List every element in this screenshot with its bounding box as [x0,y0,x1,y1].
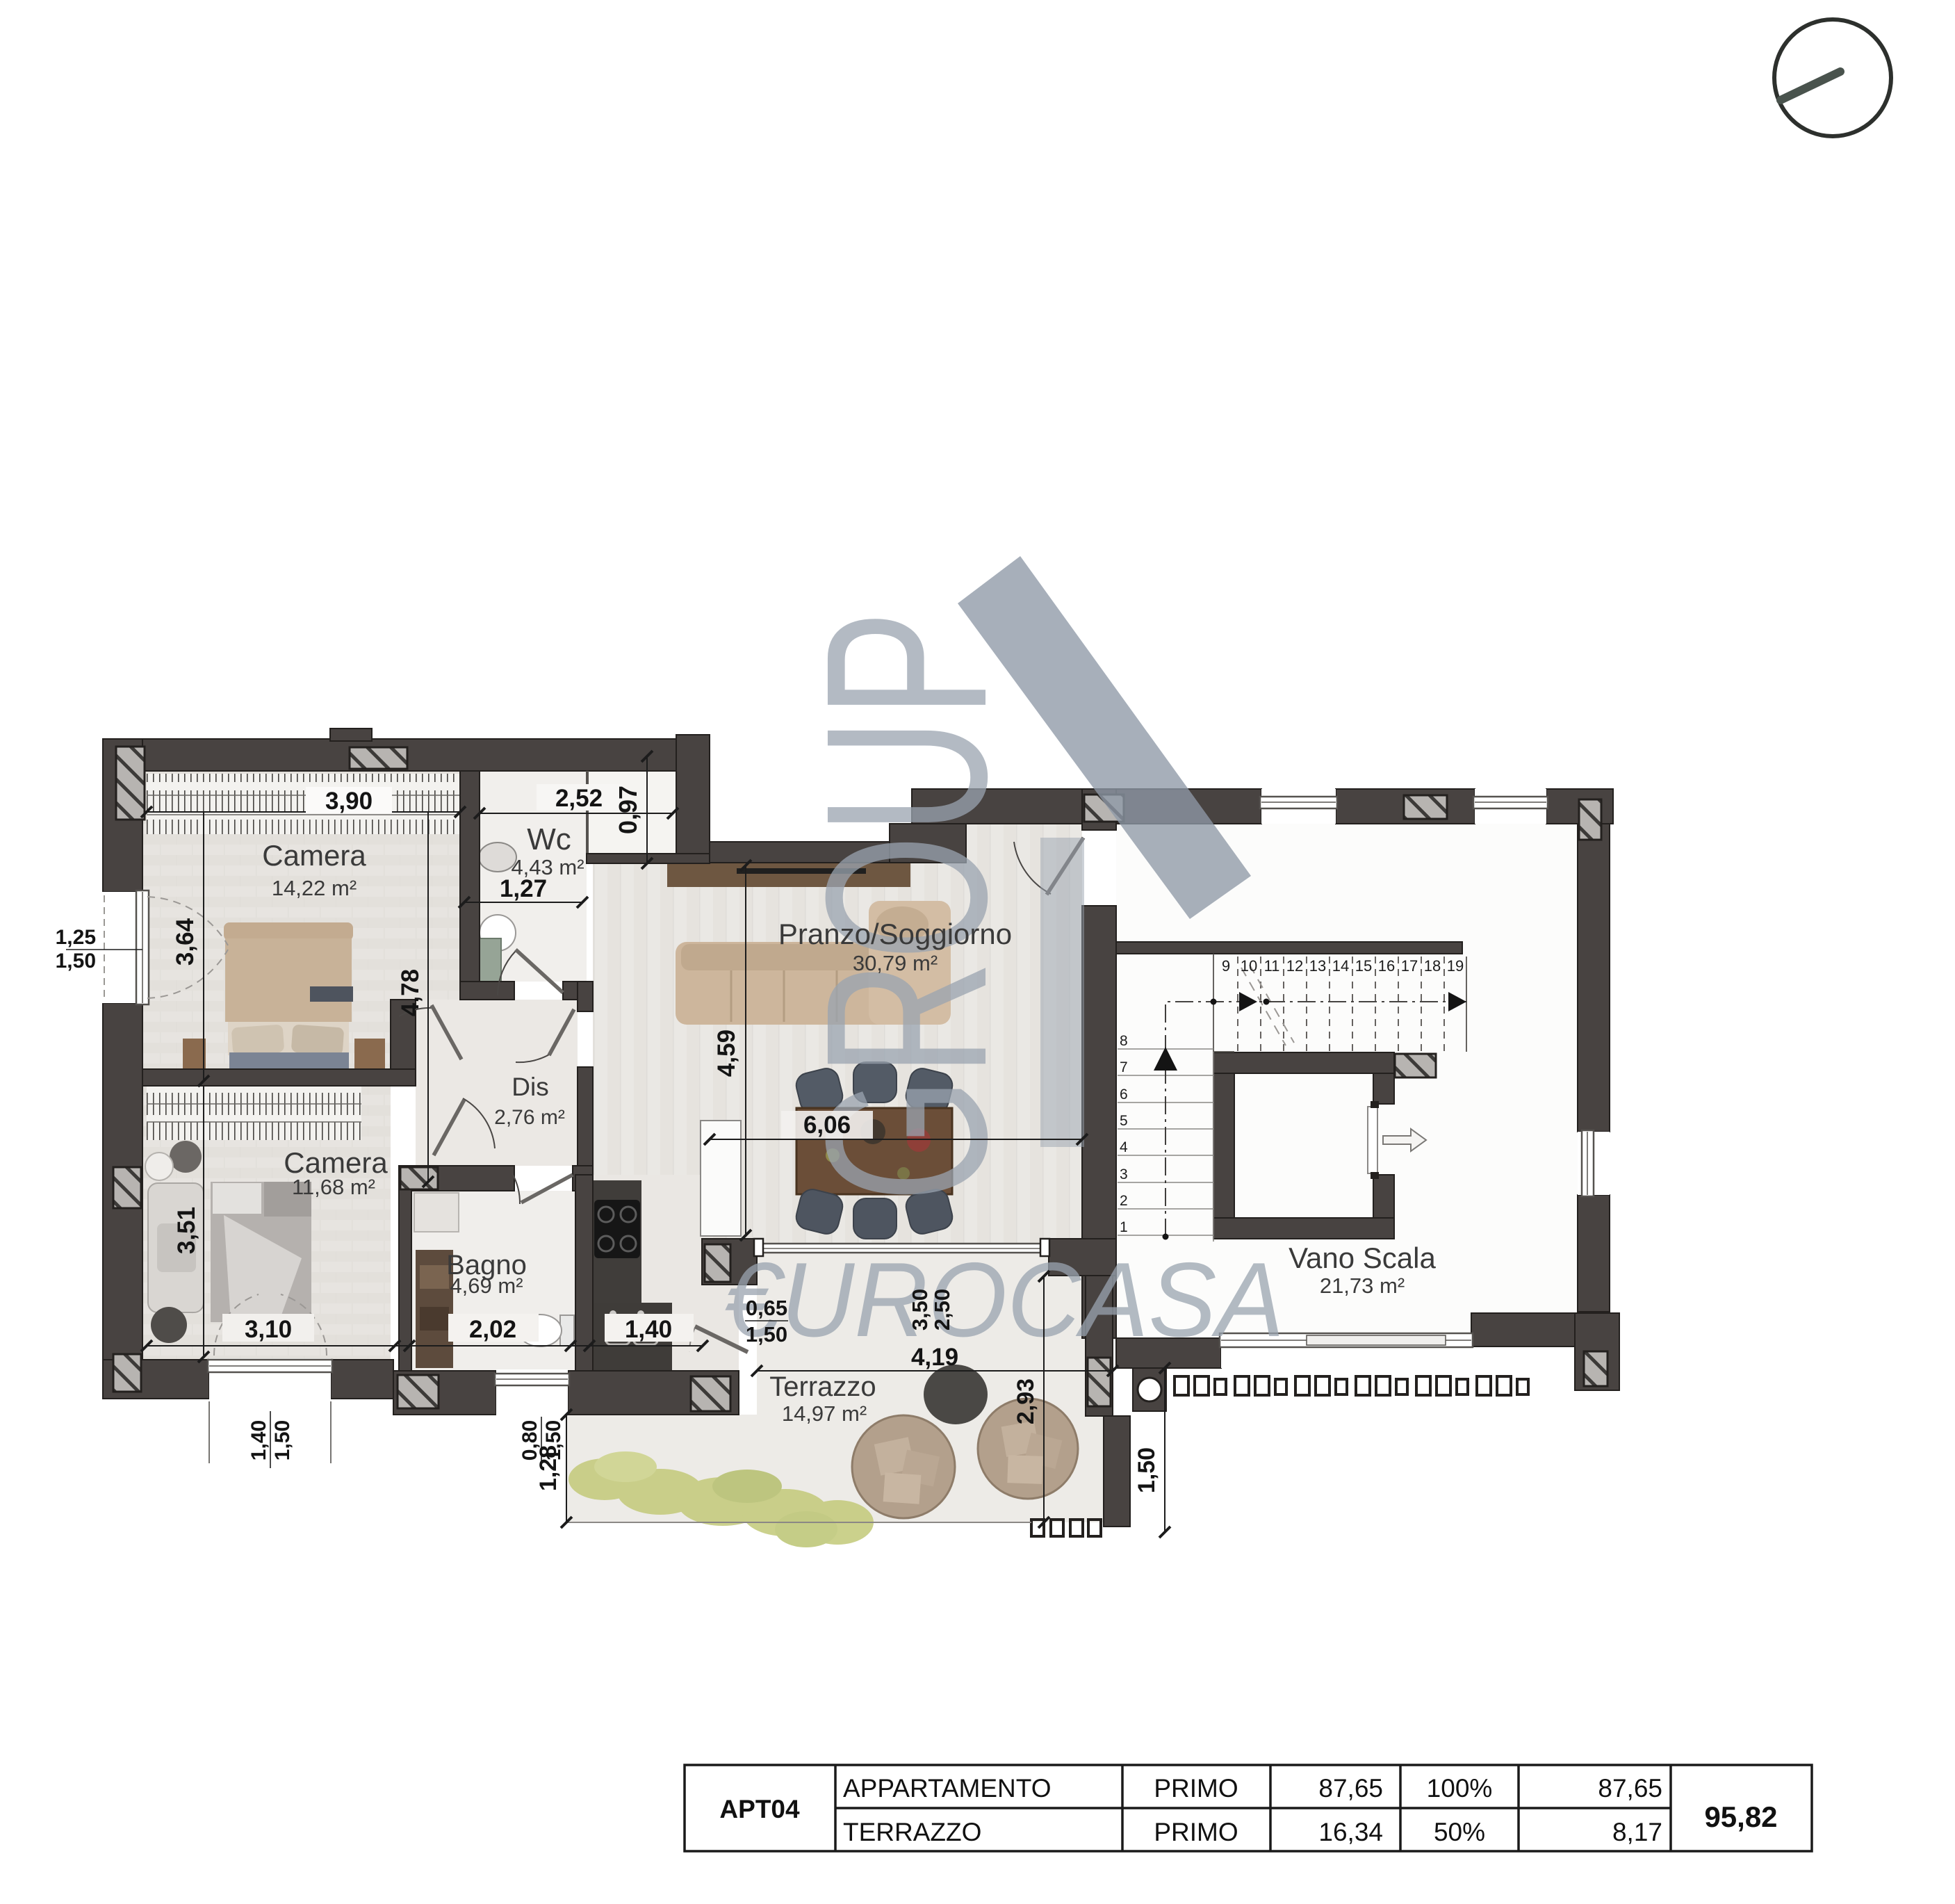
svg-text:14,97 m²: 14,97 m² [782,1401,867,1426]
svg-text:87,65: 87,65 [1318,1774,1383,1803]
svg-text:11,68 m²: 11,68 m² [292,1175,375,1199]
svg-text:50%: 50% [1434,1818,1485,1846]
svg-text:2,76 m²: 2,76 m² [494,1106,565,1129]
svg-text:30,79 m²: 30,79 m² [853,951,938,975]
svg-text:PRIMO: PRIMO [1154,1818,1238,1846]
svg-text:Terrazzo: Terrazzo [769,1372,876,1402]
svg-text:21,73 m²: 21,73 m² [1320,1274,1405,1298]
svg-text:7: 7 [1120,1059,1128,1075]
svg-text:Wc: Wc [527,822,571,856]
svg-text:1,40: 1,40 [625,1316,672,1343]
svg-text:2,02: 2,02 [469,1316,516,1343]
svg-text:Dis: Dis [512,1073,548,1101]
svg-text:95,82: 95,82 [1704,1800,1777,1833]
svg-text:6: 6 [1120,1087,1128,1102]
svg-text:1,50: 1,50 [746,1322,787,1346]
svg-text:3,50: 3,50 [908,1289,932,1331]
svg-text:11: 11 [1264,957,1280,975]
svg-text:6,06: 6,06 [803,1112,851,1139]
svg-text:2,93: 2,93 [1013,1378,1039,1424]
svg-text:0,97: 0,97 [614,786,642,834]
svg-text:16,34: 16,34 [1318,1818,1383,1846]
svg-text:1,50: 1,50 [271,1420,294,1460]
svg-text:14: 14 [1332,957,1349,975]
svg-text:12: 12 [1286,957,1303,975]
svg-text:Pranzo/Soggiorno: Pranzo/Soggiorno [778,918,1012,950]
svg-text:1,40: 1,40 [247,1420,270,1460]
svg-text:3,90: 3,90 [325,788,373,815]
svg-text:3,51: 3,51 [173,1207,200,1254]
svg-text:4,69 m²: 4,69 m² [450,1274,523,1298]
svg-text:8,17: 8,17 [1612,1818,1662,1846]
svg-text:4,59: 4,59 [713,1030,740,1077]
svg-text:14,22 m²: 14,22 m² [272,876,357,900]
svg-text:Vano Scala: Vano Scala [1289,1242,1436,1274]
svg-text:3,10: 3,10 [245,1316,292,1343]
svg-text:9: 9 [1222,957,1230,975]
svg-text:100%: 100% [1427,1774,1493,1803]
svg-text:4: 4 [1120,1139,1128,1155]
svg-text:17: 17 [1401,957,1418,975]
svg-text:13: 13 [1309,957,1326,975]
svg-text:1,27: 1,27 [500,875,547,902]
svg-text:PRIMO: PRIMO [1154,1774,1238,1803]
svg-text:19: 19 [1447,957,1464,975]
svg-text:16: 16 [1378,957,1395,975]
svg-text:4,19: 4,19 [911,1344,958,1371]
svg-text:10: 10 [1241,957,1257,975]
svg-text:8: 8 [1120,1033,1128,1049]
svg-text:2,50: 2,50 [930,1289,954,1331]
svg-text:APT04: APT04 [719,1795,800,1823]
svg-text:3,64: 3,64 [172,918,199,966]
svg-text:Camera: Camera [284,1146,388,1179]
svg-text:18: 18 [1424,957,1441,975]
svg-text:TERRAZZO: TERRAZZO [843,1818,981,1846]
svg-text:2: 2 [1120,1193,1128,1209]
svg-text:0,65: 0,65 [746,1296,787,1320]
svg-text:1,50: 1,50 [56,950,96,973]
svg-text:2,52: 2,52 [555,785,603,812]
svg-text:APPARTAMENTO: APPARTAMENTO [843,1774,1052,1803]
svg-text:1,28: 1,28 [535,1445,562,1491]
svg-text:4,78: 4,78 [397,969,424,1016]
svg-text:5: 5 [1120,1113,1128,1129]
svg-text:Camera: Camera [262,839,366,872]
svg-text:1: 1 [1120,1219,1128,1235]
svg-text:87,65: 87,65 [1598,1774,1662,1803]
svg-text:1,50: 1,50 [1134,1447,1160,1493]
svg-text:€UROCASA: €UROCASA [724,1241,1284,1359]
svg-text:1,25: 1,25 [56,926,96,949]
svg-text:3: 3 [1120,1166,1128,1182]
svg-text:15: 15 [1355,957,1372,975]
